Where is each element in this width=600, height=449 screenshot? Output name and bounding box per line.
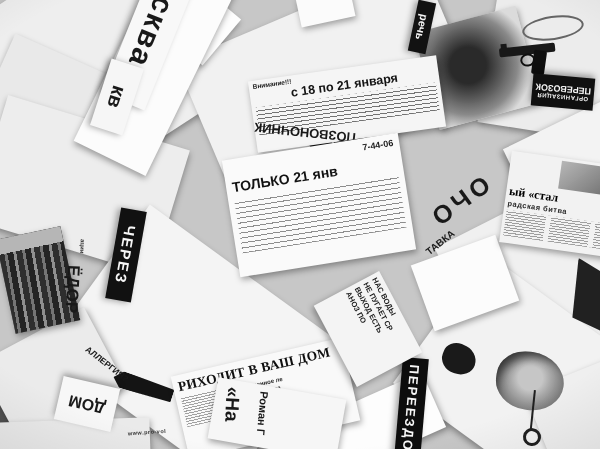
newspaper-collage-photo: речь ПЕРЕ МА ОРГАНИЗАЦИЯ ПЕРЕВОЗОК ЧЕРЕЗ… [0,0,600,449]
thermometer-stem [530,390,536,430]
headline-text: кв [103,83,132,111]
pistol-grip [531,50,547,76]
headline-text: ДОМ [67,391,107,417]
fedor-headline: ЁДОР [57,246,87,331]
perevozok-banner: ОРГАНИЗАЦИЯ ПЕРЕВОЗОК [531,73,596,110]
book-title-fragment: «На [220,386,244,422]
banner-label: ПЕРЕЕЗДОВ [399,364,423,449]
headline-text: ЁДОР [61,264,83,313]
author-name-fragment: Роман Г [255,391,271,436]
banner-label: речь [413,13,430,41]
stalingrad-article: ый «стал радская битва [499,151,600,257]
